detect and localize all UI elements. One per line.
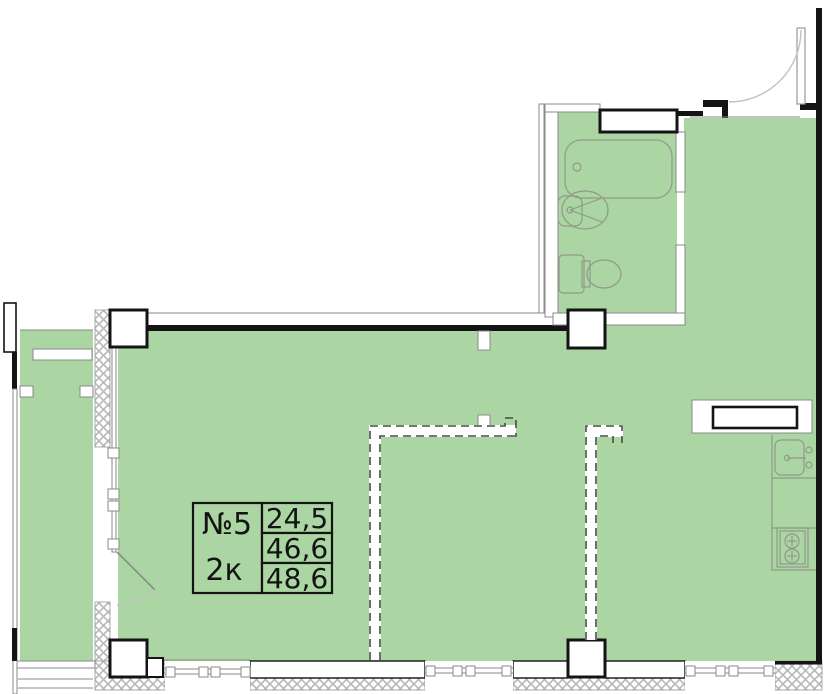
bottom-wall-hatch-2 xyxy=(250,678,425,690)
right-wall xyxy=(816,8,822,663)
bottom-wall-edge-3 xyxy=(775,661,822,665)
left-wall-hatch-top xyxy=(95,310,110,447)
mullion xyxy=(108,489,119,499)
entry-hall-floor xyxy=(684,118,816,661)
bathroom-top-wall-stub xyxy=(677,111,703,116)
facade-wall-top xyxy=(12,352,17,389)
kitchen-duct-box xyxy=(713,407,797,428)
wall-stub-top xyxy=(478,331,490,350)
floor-plan: №5 2к 24,5 46,6 48,6 xyxy=(0,0,828,694)
column-bottom-middle xyxy=(568,640,605,677)
mullion xyxy=(108,448,119,458)
bathroom-right-wall-lower xyxy=(676,245,685,323)
facade-pier xyxy=(4,303,16,352)
balcony-floor xyxy=(20,330,93,661)
area-living-value: 24,5 xyxy=(266,502,328,535)
left-wall-hatch-bottom xyxy=(95,602,110,661)
balcony-sill xyxy=(33,349,92,360)
bathroom-top-wall xyxy=(545,104,600,112)
top-wall xyxy=(147,325,568,331)
facade-wall-bottom xyxy=(12,628,17,661)
bottom-wall-hatch-3 xyxy=(513,678,685,690)
column-top-left xyxy=(110,310,147,347)
column-bottom-left-notch xyxy=(147,658,163,677)
bottom-sill-3 xyxy=(605,661,685,678)
bathroom-left-wall xyxy=(545,104,558,317)
entry-door-arc-icon xyxy=(729,30,801,102)
floor-plan-canvas: №5 2к 24,5 46,6 48,6 xyxy=(0,0,828,694)
bottom-window-2 xyxy=(425,661,513,690)
bottom-wall-hatch-4 xyxy=(775,661,822,690)
bathroom-duct-box xyxy=(600,110,677,132)
area-apartment-value: 46,6 xyxy=(266,532,328,565)
area-total-value: 48,6 xyxy=(266,562,328,595)
entry-door-jamb-left-return xyxy=(722,107,728,118)
mullion xyxy=(108,539,119,549)
glazing-tick-right xyxy=(80,386,93,397)
bottom-sill-1 xyxy=(250,661,425,678)
entry-door xyxy=(729,28,805,104)
apartment-label-box: №5 2к 24,5 46,6 48,6 xyxy=(193,502,332,595)
apartment-rooms: 2к xyxy=(205,553,242,588)
floor-areas xyxy=(20,112,816,661)
shaft-gap-line xyxy=(539,104,544,313)
column-bottom-left xyxy=(110,640,147,677)
bottom-sill-2 xyxy=(513,661,568,678)
mullion xyxy=(108,501,119,511)
bottom-window-3 xyxy=(685,661,775,690)
bottom-window-1 xyxy=(165,661,250,690)
entry-door-jamb-left xyxy=(703,100,728,107)
apartment-number: №5 xyxy=(202,507,252,542)
glazing-tick-left xyxy=(20,386,33,397)
bathroom-right-wall-upper xyxy=(676,132,685,192)
passage-floor xyxy=(605,325,684,661)
balcony-bottom-rail xyxy=(17,661,95,668)
column-top-middle xyxy=(568,310,605,348)
living-room-floor-top xyxy=(147,331,568,661)
